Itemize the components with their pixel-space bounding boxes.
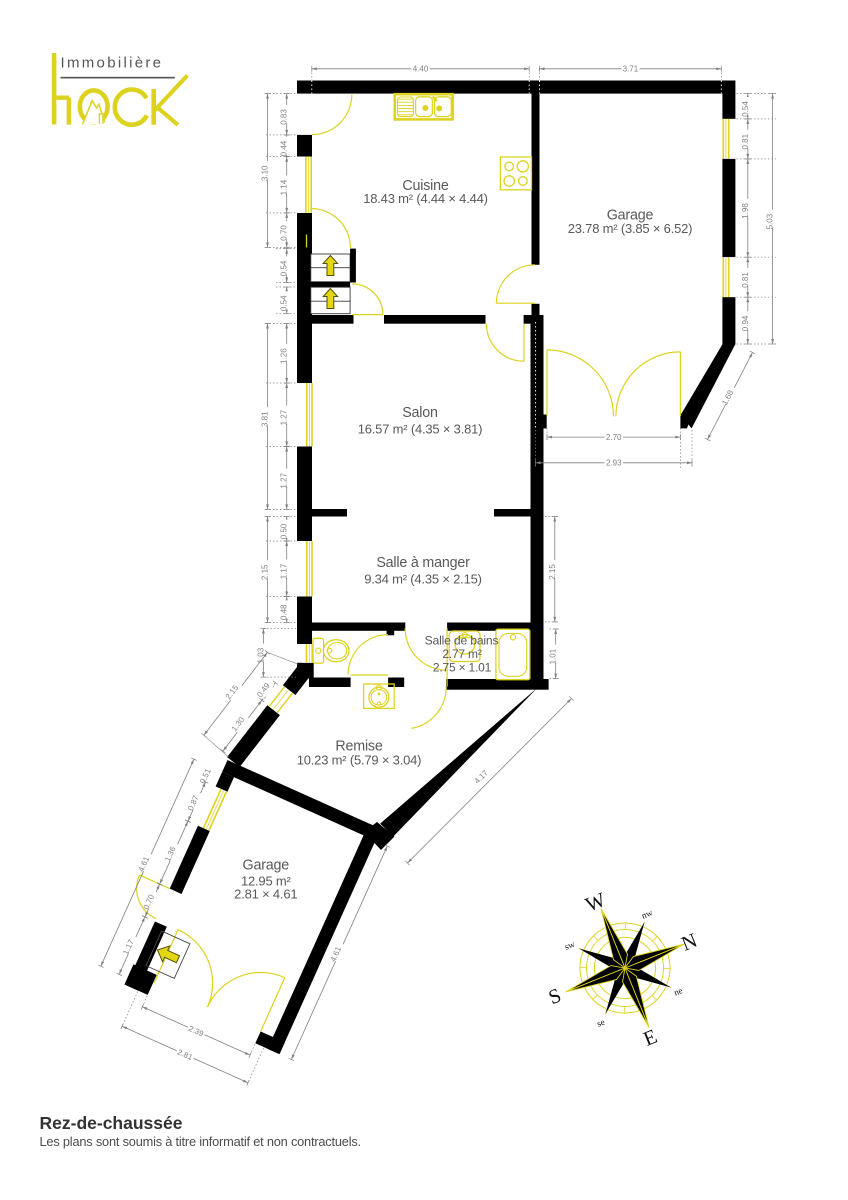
svg-text:2.93: 2.93 (606, 459, 622, 468)
svg-text:2.75 × 1.01: 2.75 × 1.01 (433, 661, 492, 675)
svg-text:2.70: 2.70 (606, 433, 622, 442)
svg-text:Rez-de-chaussée: Rez-de-chaussée (40, 1113, 183, 1133)
svg-text:23.78 m² (3.85 × 6.52): 23.78 m² (3.85 × 6.52) (568, 221, 693, 236)
svg-text:Salle à manger: Salle à manger (376, 555, 470, 571)
svg-text:0.54: 0.54 (741, 101, 750, 117)
svg-text:0.94: 0.94 (741, 315, 750, 331)
svg-text:1.27: 1.27 (280, 472, 289, 488)
svg-text:0.81: 0.81 (741, 133, 750, 149)
svg-text:2.15: 2.15 (261, 564, 270, 580)
svg-text:9.34 m² (4.35 × 2.15): 9.34 m² (4.35 × 2.15) (364, 572, 482, 587)
svg-text:0.48: 0.48 (280, 604, 289, 620)
svg-text:1.27: 1.27 (280, 409, 289, 425)
svg-text:3.71: 3.71 (623, 65, 639, 74)
svg-text:5.03: 5.03 (766, 213, 775, 229)
svg-text:0.83: 0.83 (280, 109, 289, 125)
svg-text:3.81: 3.81 (261, 411, 270, 427)
svg-text:0.70: 0.70 (280, 225, 289, 241)
svg-text:0.81: 0.81 (741, 272, 750, 288)
svg-text:0.50: 0.50 (280, 523, 289, 539)
svg-text:Garage: Garage (243, 858, 290, 874)
svg-text:2.81 × 4.61: 2.81 × 4.61 (234, 887, 297, 902)
svg-text:0.44: 0.44 (280, 140, 289, 156)
svg-text:0.54: 0.54 (280, 260, 289, 276)
svg-text:1.98: 1.98 (741, 203, 750, 219)
svg-text:10.23 m² (5.79 × 3.04): 10.23 m² (5.79 × 3.04) (297, 753, 422, 768)
svg-text:0.54: 0.54 (280, 295, 289, 311)
svg-text:1.26: 1.26 (280, 348, 289, 364)
svg-text:18.43 m² (4.44 × 4.44): 18.43 m² (4.44 × 4.44) (363, 191, 488, 206)
svg-text:2.77 m²: 2.77 m² (442, 647, 481, 661)
svg-text:Immobilière: Immobilière (61, 55, 164, 72)
svg-text:16.57 m² (4.35 × 3.81): 16.57 m² (4.35 × 3.81) (358, 422, 483, 437)
svg-text:Les plans sont soumis à titre: Les plans sont soumis à titre informatif… (40, 1134, 361, 1149)
svg-text:4.40: 4.40 (413, 65, 429, 74)
svg-text:2.15: 2.15 (548, 564, 557, 580)
svg-text:3.10: 3.10 (261, 165, 270, 181)
svg-text:1.01: 1.01 (549, 648, 558, 664)
svg-text:Salon: Salon (402, 405, 438, 421)
svg-text:1.14: 1.14 (280, 179, 289, 195)
svg-text:1.17: 1.17 (280, 563, 289, 579)
svg-text:Salle de bains: Salle de bains (425, 634, 499, 648)
